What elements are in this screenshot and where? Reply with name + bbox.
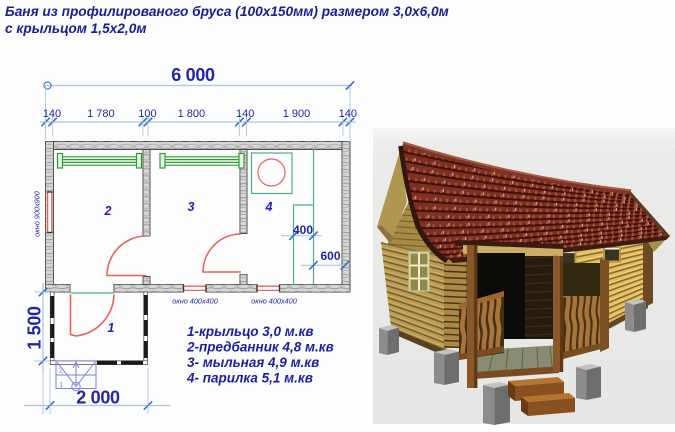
svg-text:окно 900х900: окно 900х900 (33, 191, 42, 237)
svg-text:2: 2 (104, 204, 112, 218)
svg-text:с крыльцом 1,5х2,0м: с крыльцом 1,5х2,0м (5, 21, 146, 36)
svg-text:Баня из профилированого бруса: Баня из профилированого бруса (100х150мм… (5, 4, 449, 19)
svg-text:1: 1 (108, 321, 115, 335)
svg-text:1 900: 1 900 (283, 108, 311, 120)
svg-text:140: 140 (236, 108, 254, 120)
svg-text:6 000: 6 000 (171, 65, 215, 85)
svg-text:1 500: 1 500 (25, 306, 45, 350)
svg-text:3- мыльная 4,9 м.кв: 3- мыльная 4,9 м.кв (187, 355, 319, 370)
svg-text:окно 400х400: окно 400х400 (172, 297, 218, 306)
svg-text:окно 400х400: окно 400х400 (251, 297, 297, 306)
svg-text:100: 100 (138, 108, 156, 120)
svg-text:600: 600 (320, 249, 340, 263)
svg-text:2-предбанник 4,8 м.кв: 2-предбанник 4,8 м.кв (186, 340, 334, 355)
svg-text:400: 400 (293, 223, 313, 237)
svg-text:1: 1 (59, 380, 63, 389)
svg-text:3: 3 (188, 200, 195, 214)
svg-text:1 780: 1 780 (87, 108, 115, 120)
svg-text:2: 2 (59, 366, 63, 375)
svg-text:140: 140 (43, 108, 61, 120)
svg-text:4: 4 (265, 200, 273, 214)
svg-text:2 000: 2 000 (76, 388, 120, 408)
svg-text:1-крыльцо 3,0 м.кв: 1-крыльцо 3,0 м.кв (187, 324, 314, 339)
svg-text:4- парилка 5,1 м.кв: 4- парилка 5,1 м.кв (186, 371, 313, 386)
svg-text:140: 140 (339, 108, 357, 120)
svg-text:1 800: 1 800 (178, 108, 206, 120)
